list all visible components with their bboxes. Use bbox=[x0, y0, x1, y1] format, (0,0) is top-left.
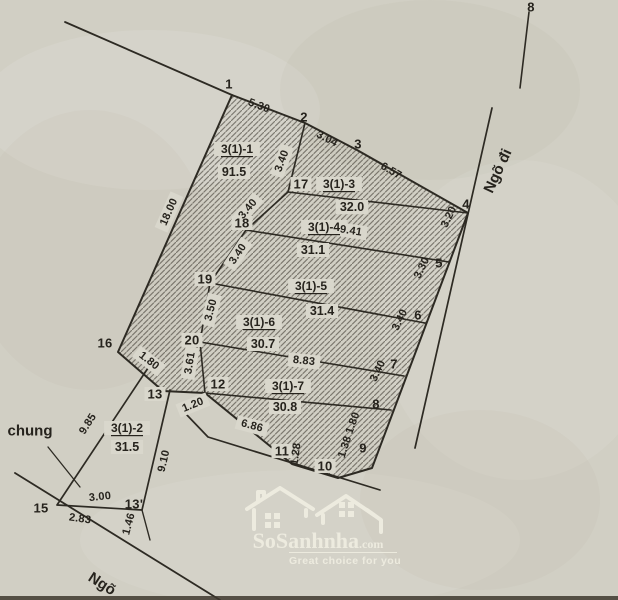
plot-code-label: 3(1)-4 bbox=[308, 220, 340, 234]
point-label: 13 bbox=[147, 387, 162, 402]
point-label: 11 bbox=[275, 444, 289, 459]
map-text: chung bbox=[8, 423, 53, 440]
plot-area-label: 32.0 bbox=[340, 200, 364, 214]
point-label: 15 bbox=[33, 501, 48, 516]
plot-area-label: 30.8 bbox=[273, 400, 297, 414]
point-label: 5 bbox=[435, 256, 443, 271]
plot-area-label: 31.1 bbox=[301, 243, 325, 257]
point-label: 7 bbox=[390, 357, 398, 372]
survey-map: 1234567891011121313'15161718192085.303.0… bbox=[0, 0, 618, 600]
plot-area-label: 31.4 bbox=[310, 304, 334, 318]
point-label: 3 bbox=[354, 137, 362, 152]
photo-bottom-edge bbox=[0, 596, 618, 600]
plot-code-label: 3(1)-5 bbox=[295, 279, 327, 293]
plot-code-label: 3(1)-2 bbox=[111, 421, 143, 435]
point-label: 20 bbox=[184, 333, 199, 348]
plot-code-label: 3(1)-1 bbox=[221, 142, 253, 156]
dimension-label: 3.00 bbox=[88, 490, 111, 504]
plot-code-label: 3(1)-6 bbox=[243, 315, 275, 329]
point-label: 4 bbox=[462, 197, 470, 212]
point-label: 19 bbox=[197, 272, 212, 287]
point-label: 13' bbox=[125, 497, 143, 512]
plot-code-label: 3(1)-7 bbox=[272, 379, 304, 393]
point-label: 8 bbox=[372, 397, 380, 412]
point-label: 6 bbox=[414, 308, 422, 323]
dimension-label: 8.83 bbox=[292, 354, 315, 368]
scanned-cadastral-sheet: 1234567891011121313'15161718192085.303.0… bbox=[0, 0, 618, 600]
point-label: 8 bbox=[527, 0, 535, 15]
point-label: 12 bbox=[210, 377, 225, 392]
plot-area-label: 30.7 bbox=[251, 337, 275, 351]
plot-area-label: 31.5 bbox=[115, 440, 139, 454]
point-label: 2 bbox=[300, 110, 308, 125]
plot-code-label: 3(1)-3 bbox=[323, 177, 355, 191]
point-label: 16 bbox=[97, 336, 112, 351]
point-label: 9 bbox=[359, 441, 367, 456]
point-label: 1 bbox=[225, 77, 233, 92]
paper-mottle bbox=[360, 410, 600, 590]
point-label: 10 bbox=[317, 459, 332, 474]
point-label: 17 bbox=[293, 177, 308, 192]
survey-sketch-svg: 1234567891011121313'15161718192085.303.0… bbox=[0, 0, 618, 600]
plot-area-label: 91.5 bbox=[222, 165, 246, 179]
